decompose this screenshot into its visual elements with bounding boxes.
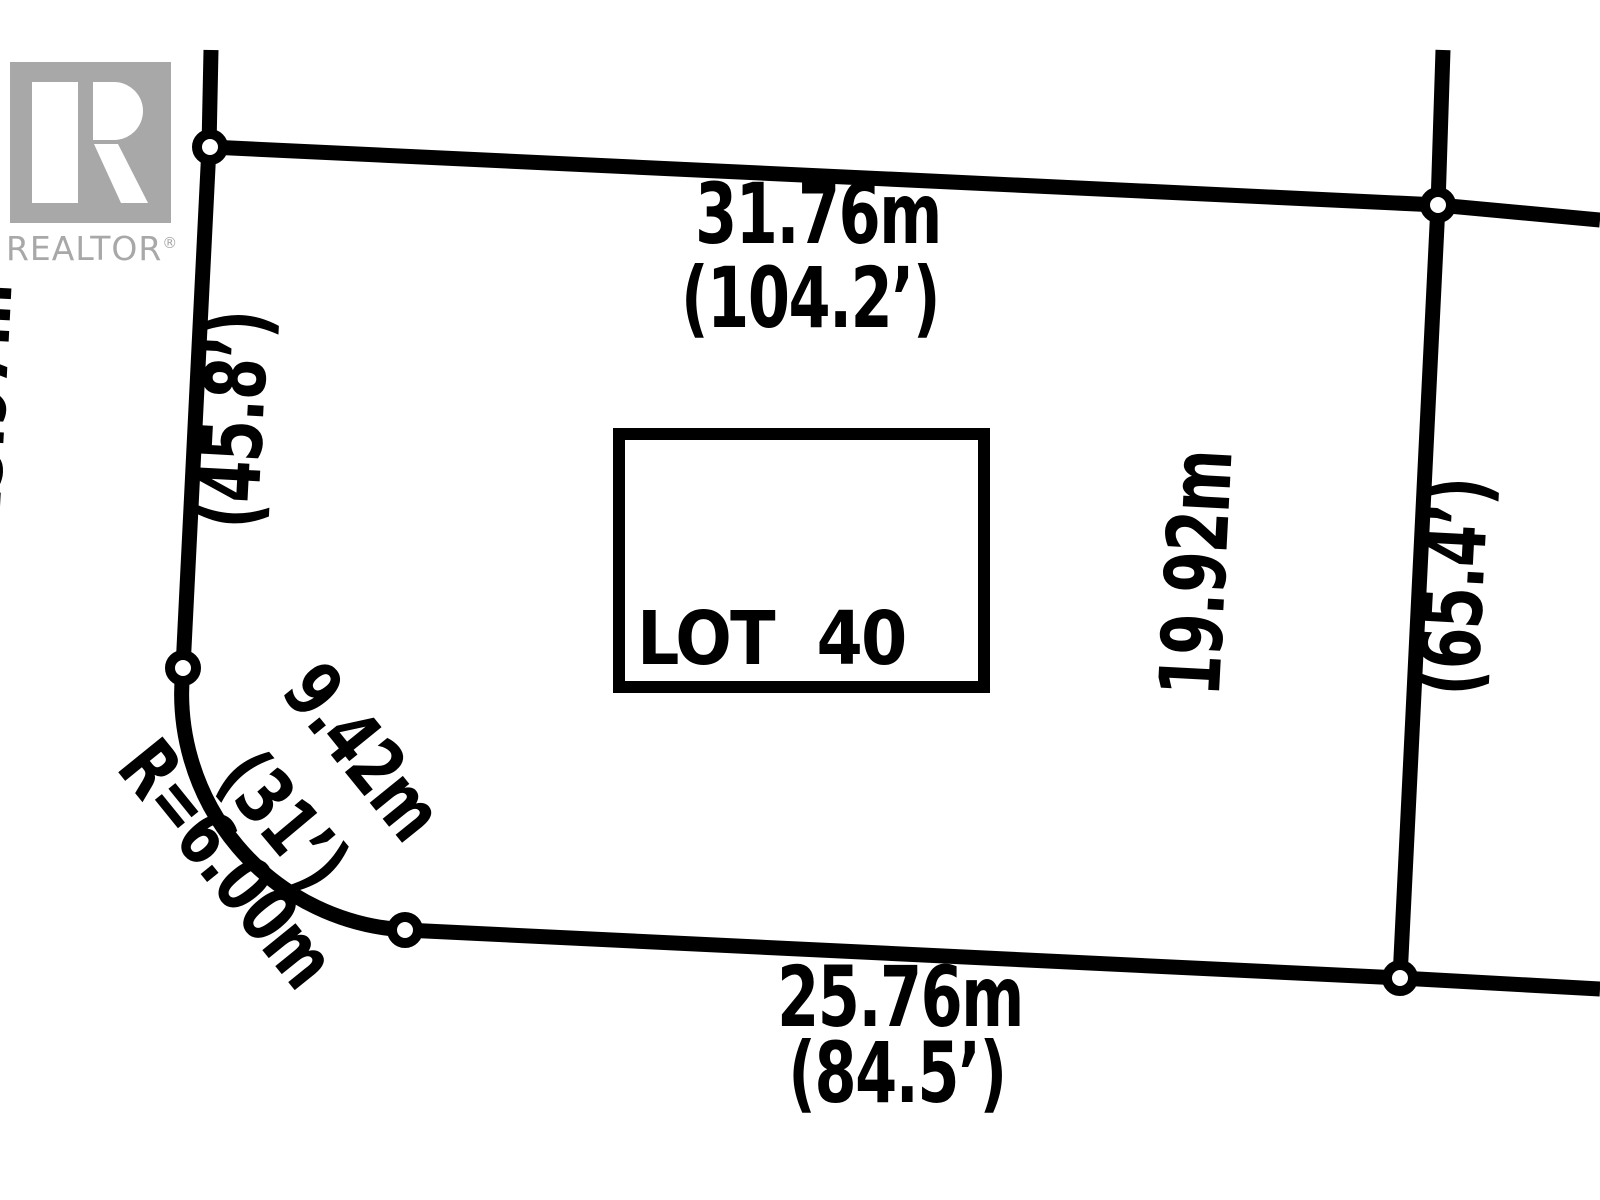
survey-marker-curve-end xyxy=(392,917,418,943)
realtor-logo-mark xyxy=(10,62,171,223)
dim-left-metric: 13.97m xyxy=(0,281,26,531)
survey-marker-curve-start xyxy=(170,655,196,681)
realtor-brand-text: REALTOR xyxy=(6,229,162,268)
dim-right-metric: 19.92m xyxy=(1147,448,1246,698)
survey-marker-top-left xyxy=(197,134,223,160)
survey-marker-bottom-right xyxy=(1387,965,1413,991)
lot-plan-canvas: REALTOR® 31.76m (104.2’) 25.76m (84.5’) … xyxy=(0,0,1600,1200)
realtor-wordmark: REALTOR® xyxy=(6,226,177,266)
dim-right: 19.92m (65.4’) xyxy=(975,439,1600,720)
dim-left: 13.97m (45.8’) xyxy=(0,272,455,553)
survey-marker-top-right xyxy=(1425,192,1451,218)
dim-bottom-imperial: (84.5’) xyxy=(788,1030,1005,1116)
realtor-logo-r-stem xyxy=(32,82,78,203)
lot-number: LOT 40 xyxy=(637,600,944,679)
dim-right-imperial: (65.4’) xyxy=(1404,462,1503,712)
dim-top-metric: 31.76m xyxy=(695,171,941,257)
dim-left-imperial: (45.8’) xyxy=(184,295,283,545)
lot-label-text: LOT 40 A=626m2 (0.15ac) xyxy=(637,442,944,693)
lot-label-box: LOT 40 A=626m2 (0.15ac) xyxy=(613,428,990,693)
registered-trademark-symbol: ® xyxy=(162,234,177,252)
dim-top-imperial: (104.2’) xyxy=(681,255,939,341)
